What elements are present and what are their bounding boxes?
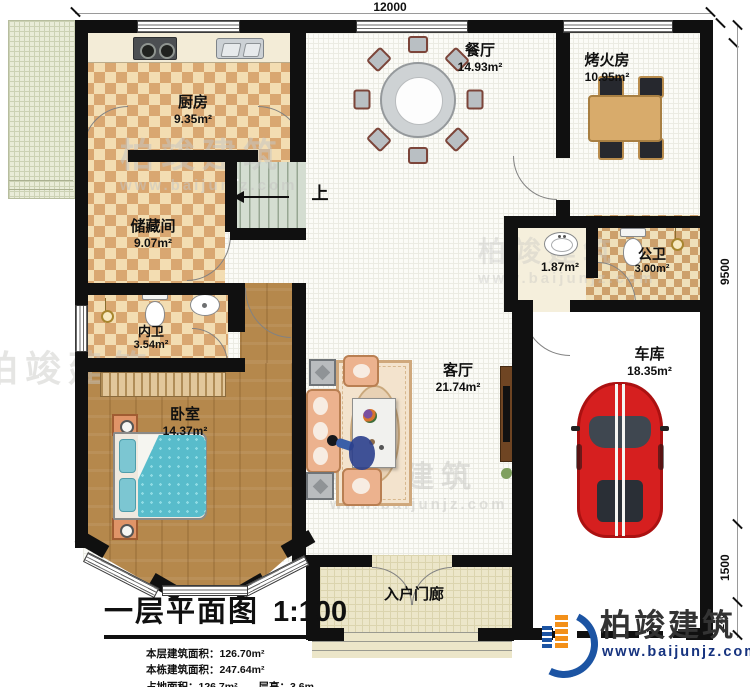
wall xyxy=(75,20,88,305)
dining-chair xyxy=(354,90,371,110)
nightstand xyxy=(112,518,138,540)
company-website: www.baijunjz.com xyxy=(602,644,750,660)
window xyxy=(356,20,468,33)
wall xyxy=(468,20,563,33)
dimension-label-right-upper: 9500 xyxy=(718,232,732,312)
fire-room-label: 烤火房 10.95m² xyxy=(542,52,672,84)
wall xyxy=(75,283,228,295)
wall xyxy=(128,150,258,162)
pillow xyxy=(119,439,136,473)
bed xyxy=(113,432,207,520)
stove-icon xyxy=(133,37,177,60)
terrace-floor xyxy=(8,20,76,199)
inner-bath-label: 内卫 3.54m² xyxy=(91,324,211,352)
floor-plan: 柏竣建筑 www.baijunjz.com 柏竣建筑 柏竣建筑 www.baij… xyxy=(0,0,750,687)
company-name: 柏竣建筑 xyxy=(600,600,736,645)
kitchen-label: 厨房 9.35m² xyxy=(128,94,258,126)
window xyxy=(75,305,88,352)
porch-label: 入户门廊 xyxy=(346,586,482,604)
car-stripe xyxy=(615,384,618,536)
pillow xyxy=(119,478,136,512)
wall xyxy=(478,628,514,641)
toilet-icon xyxy=(620,228,646,237)
car-mirror xyxy=(660,426,669,431)
fire-room-table xyxy=(588,95,662,142)
dimension-tick xyxy=(70,7,81,18)
wall xyxy=(228,283,245,332)
car-engine-cover xyxy=(597,480,643,522)
dimension-tick xyxy=(715,18,726,29)
bedroom-label: 卧室 14.37m² xyxy=(120,406,250,438)
wall xyxy=(512,300,533,640)
logo-mark-icon xyxy=(528,606,592,670)
wall xyxy=(700,20,713,640)
wardrobe xyxy=(100,372,226,397)
title-underline xyxy=(104,635,312,639)
person-figure xyxy=(349,436,375,470)
wall xyxy=(75,150,83,162)
area-info-line: 本栋建筑面积：247.64m² xyxy=(146,662,334,678)
car-wheel xyxy=(576,444,582,470)
garage-label: 车库 18.35m² xyxy=(592,346,707,378)
wall xyxy=(225,160,237,232)
dimension-label-top: 12000 xyxy=(340,0,440,14)
car-wheel xyxy=(658,444,664,470)
washbasin-icon xyxy=(544,232,578,256)
washbasin-icon xyxy=(190,294,220,316)
wash-area-label: 1.87m² xyxy=(523,260,597,274)
stairs-up-label: 上 xyxy=(305,184,335,204)
flower-vase xyxy=(363,409,377,423)
page-title: 一层平面图 xyxy=(104,596,259,628)
drawing-scale: 1:100 xyxy=(273,596,347,628)
car-stripe xyxy=(622,384,625,536)
dining-chair xyxy=(467,90,484,110)
side-table xyxy=(306,472,334,500)
bed-sheet-fold xyxy=(138,435,164,517)
wall xyxy=(290,28,306,162)
window xyxy=(563,20,673,33)
wall xyxy=(504,216,705,228)
armchair xyxy=(343,355,379,387)
sink-icon xyxy=(216,38,264,59)
wall xyxy=(75,352,88,548)
window xyxy=(137,20,240,33)
side-table xyxy=(309,359,336,386)
stairs-direction-arrow xyxy=(243,196,289,198)
terrace-edge-lines xyxy=(9,180,73,190)
car-windshield xyxy=(589,416,651,448)
wall xyxy=(292,283,306,567)
living-label: 客厅 21.74m² xyxy=(398,362,518,394)
armchair xyxy=(342,468,382,506)
wall xyxy=(230,228,306,240)
company-logo: 柏竣建筑 www.baijunjz.com xyxy=(528,600,743,682)
area-info-line: 占地面积：126.7m² 层高：3.6m xyxy=(146,679,334,687)
storage-label: 储藏间 9.07m² xyxy=(88,218,218,250)
title-block: 一层平面图1:100 本层建筑面积：126.70m² 本栋建筑面积：247.64… xyxy=(104,588,334,687)
wall xyxy=(75,358,245,372)
wall xyxy=(556,28,570,158)
dining-chair xyxy=(408,147,428,164)
wall xyxy=(570,300,705,312)
dimension-line xyxy=(737,25,738,638)
pendant-light-icon xyxy=(101,310,114,323)
wall xyxy=(504,216,518,312)
tv-screen xyxy=(503,386,510,442)
car xyxy=(577,382,663,538)
sofa xyxy=(306,389,341,473)
dimension-tick xyxy=(705,7,716,18)
dimension-label-right-lower: 1500 xyxy=(718,540,732,596)
dining-label: 餐厅 14.93m² xyxy=(425,42,535,74)
public-bath-label: 公卫 3.00m² xyxy=(612,246,692,275)
car-mirror xyxy=(571,426,580,431)
area-info-line: 本层建筑面积：126.70m² xyxy=(146,646,334,662)
wall xyxy=(452,555,533,567)
